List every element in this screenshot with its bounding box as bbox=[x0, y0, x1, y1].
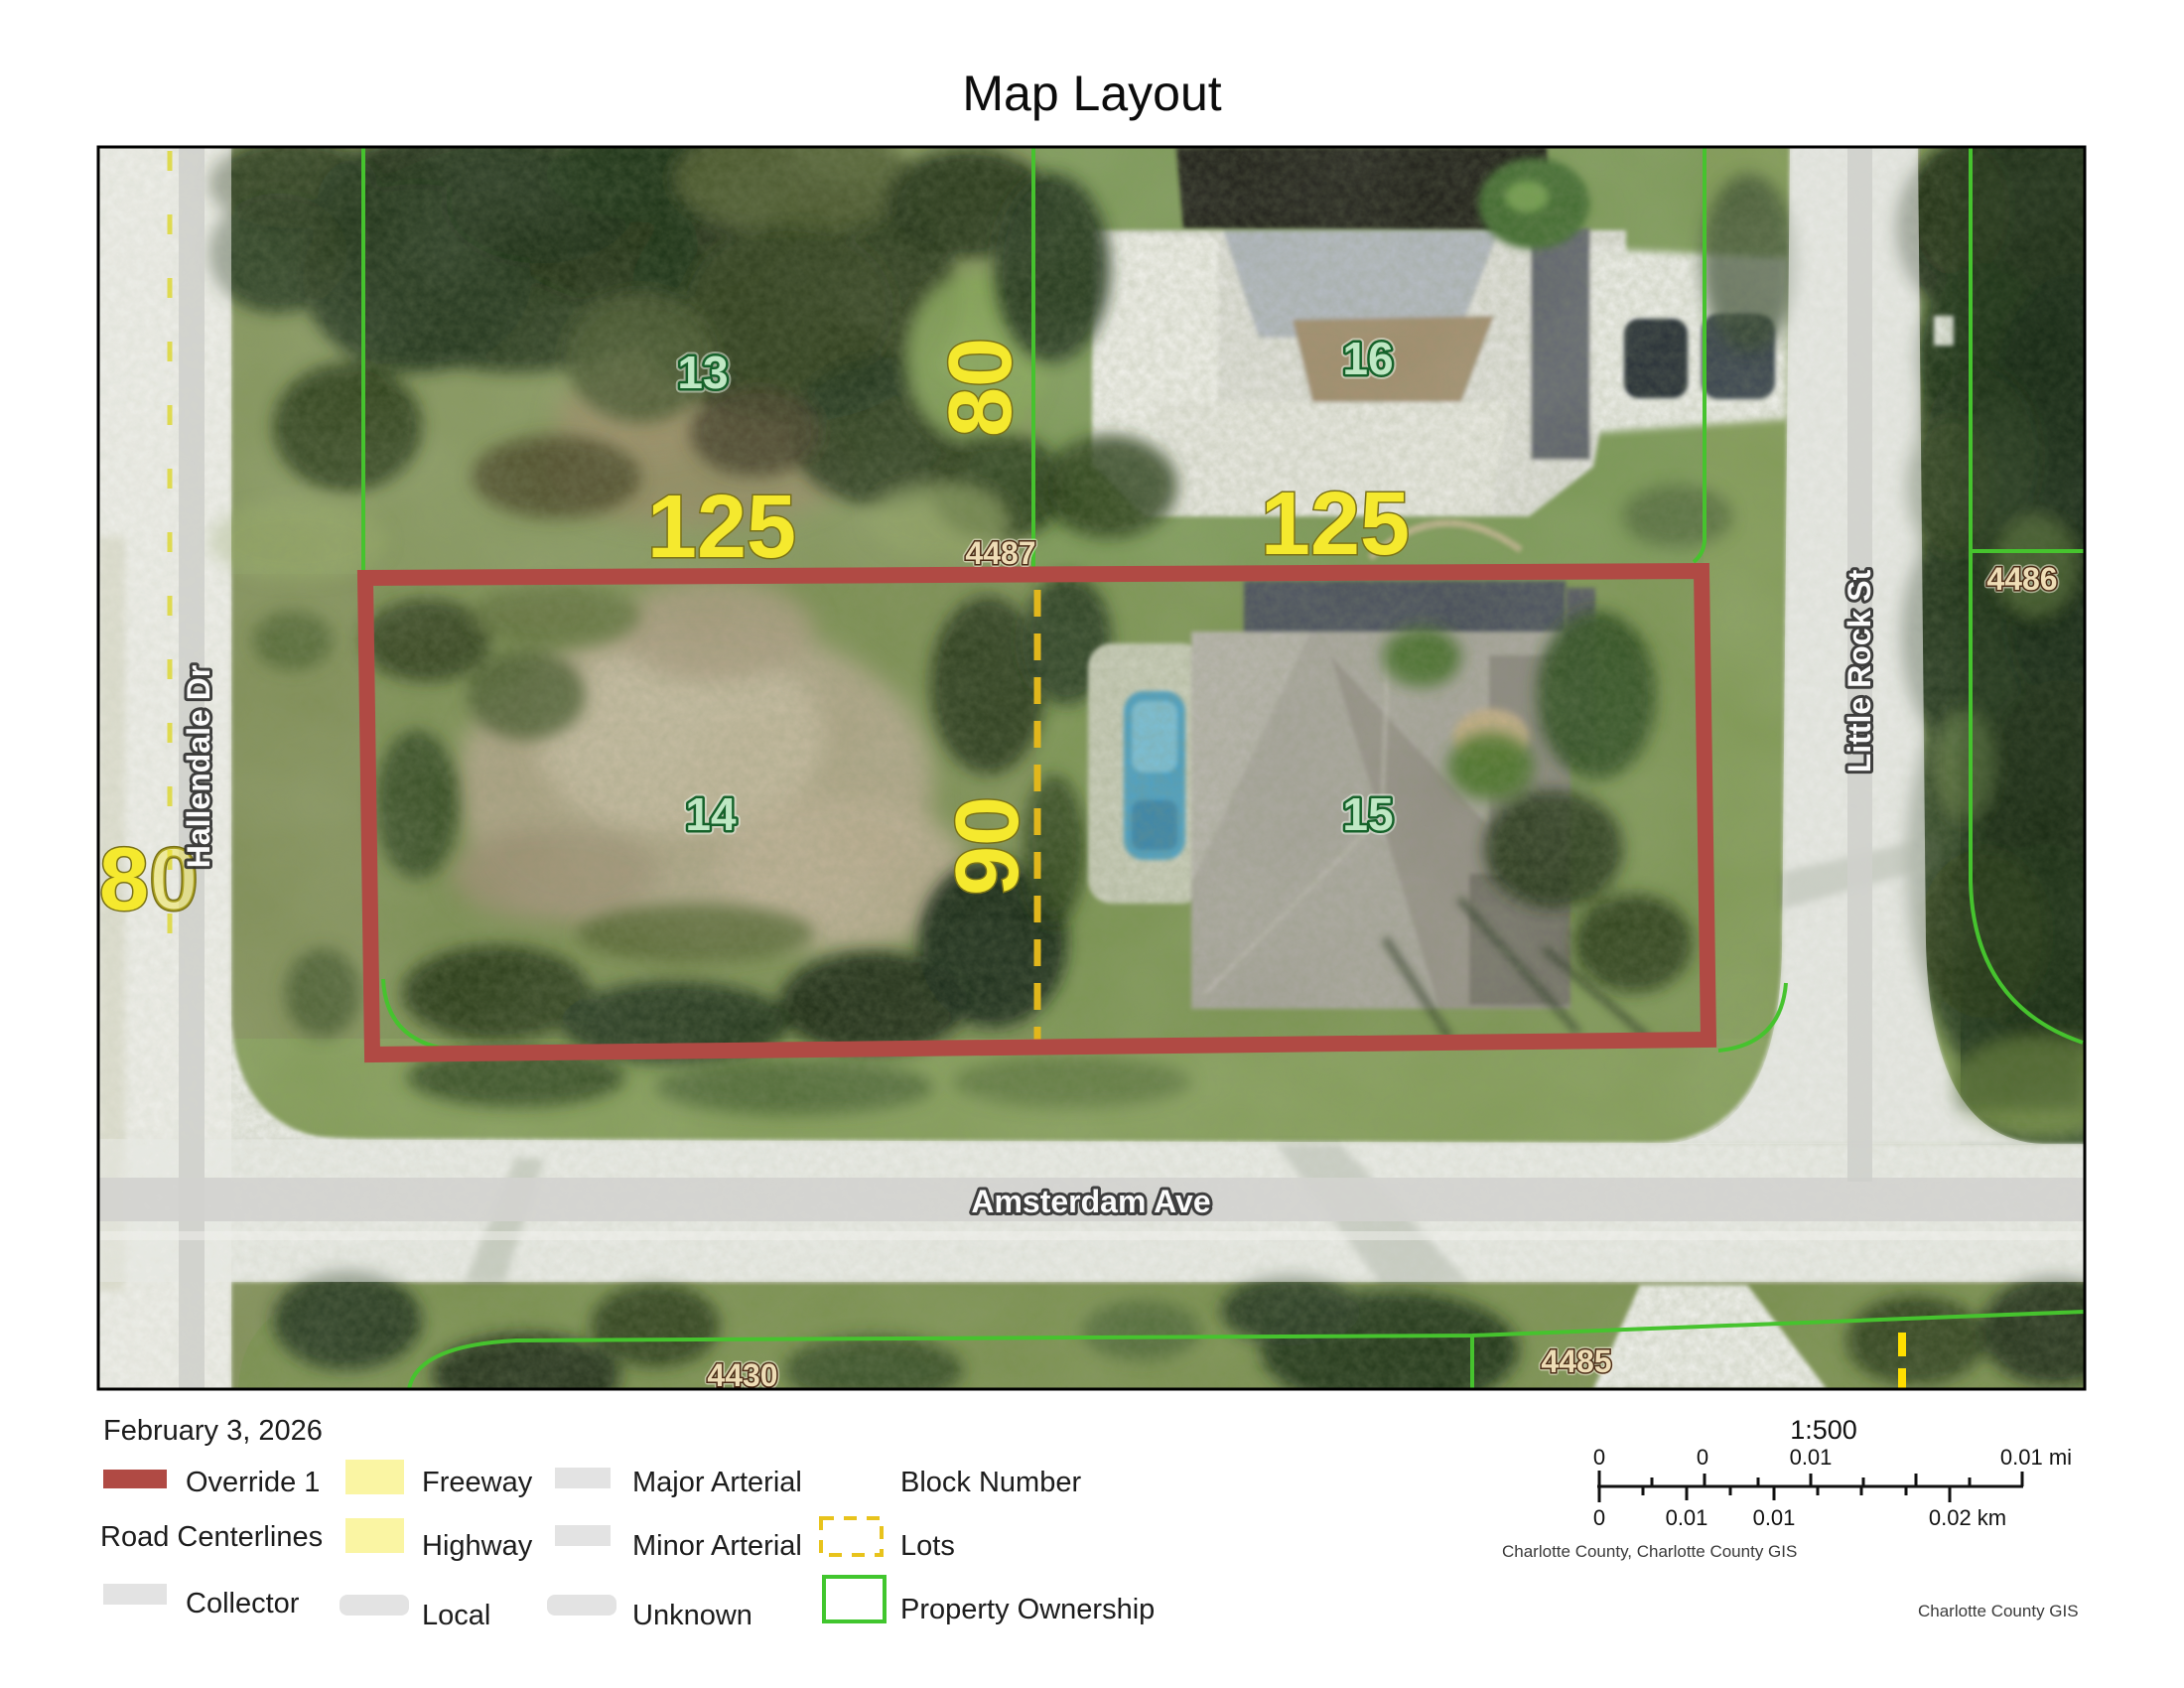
svg-text:Highway: Highway bbox=[422, 1530, 533, 1562]
svg-text:Hallendale Dr: Hallendale Dr bbox=[181, 665, 216, 869]
svg-text:Map Layout: Map Layout bbox=[962, 66, 1221, 121]
svg-text:Minor Arterial: Minor Arterial bbox=[632, 1530, 802, 1562]
svg-text:80: 80 bbox=[931, 338, 1030, 437]
svg-text:0.01: 0.01 bbox=[1790, 1445, 1833, 1470]
svg-text:16: 16 bbox=[1342, 333, 1393, 384]
svg-text:4486: 4486 bbox=[1986, 561, 2057, 597]
svg-text:0: 0 bbox=[1593, 1505, 1605, 1530]
svg-text:Unknown: Unknown bbox=[632, 1600, 752, 1631]
svg-text:Freeway: Freeway bbox=[422, 1467, 533, 1498]
svg-text:90: 90 bbox=[938, 796, 1037, 896]
svg-text:4485: 4485 bbox=[1541, 1343, 1611, 1379]
svg-text:13: 13 bbox=[677, 347, 728, 398]
svg-text:February 3, 2026: February 3, 2026 bbox=[103, 1415, 323, 1447]
svg-text:Local: Local bbox=[422, 1600, 490, 1631]
svg-text:Major Arterial: Major Arterial bbox=[632, 1467, 802, 1498]
svg-text:0.01: 0.01 bbox=[1753, 1505, 1796, 1530]
svg-text:Block Number: Block Number bbox=[900, 1467, 1081, 1498]
svg-text:Override 1: Override 1 bbox=[186, 1467, 320, 1498]
svg-text:0.02 km: 0.02 km bbox=[1929, 1505, 2006, 1530]
svg-text:Collector: Collector bbox=[186, 1588, 300, 1619]
svg-text:Property Ownership: Property Ownership bbox=[900, 1594, 1155, 1625]
svg-text:0: 0 bbox=[1697, 1445, 1708, 1470]
svg-text:4487: 4487 bbox=[965, 535, 1035, 571]
svg-text:0: 0 bbox=[1593, 1445, 1605, 1470]
svg-text:1:500: 1:500 bbox=[1790, 1415, 1857, 1445]
svg-text:15: 15 bbox=[1342, 788, 1393, 840]
svg-text:0.01 mi: 0.01 mi bbox=[2000, 1445, 2072, 1470]
svg-text:Little Rock St: Little Rock St bbox=[1842, 569, 1877, 773]
svg-text:Road Centerlines: Road Centerlines bbox=[100, 1521, 323, 1553]
svg-text:Charlotte County, Charlotte Co: Charlotte County, Charlotte County GIS bbox=[1502, 1542, 1797, 1561]
svg-text:125: 125 bbox=[1261, 475, 1410, 574]
svg-text:Charlotte County GIS: Charlotte County GIS bbox=[1918, 1602, 2079, 1620]
svg-text:Lots: Lots bbox=[900, 1530, 955, 1562]
svg-text:125: 125 bbox=[647, 478, 796, 577]
svg-text:0.01: 0.01 bbox=[1666, 1505, 1708, 1530]
svg-text:Amsterdam Ave: Amsterdam Ave bbox=[971, 1184, 1210, 1219]
svg-text:14: 14 bbox=[685, 788, 737, 840]
